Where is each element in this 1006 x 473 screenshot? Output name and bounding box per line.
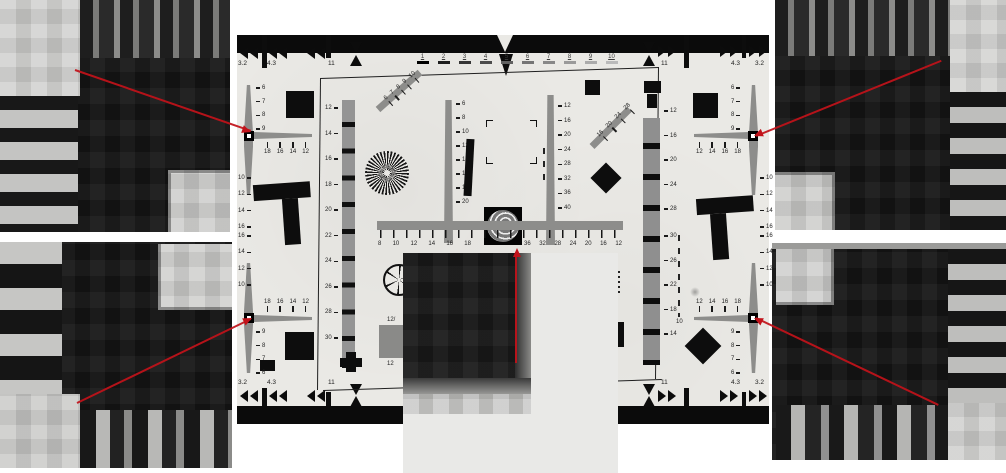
tick-label: 28 <box>664 206 677 212</box>
tick-icon <box>247 252 251 254</box>
grayscale-strip-right <box>643 118 660 365</box>
tick-label: 6 <box>731 85 740 91</box>
tick-label: 14 <box>238 249 251 255</box>
siemens-star <box>365 151 409 195</box>
tick-icon <box>247 177 251 179</box>
crop-light-square <box>158 244 232 310</box>
crop-bar-stripes <box>948 249 1006 403</box>
tick-icon <box>736 87 740 89</box>
crop-mark-icon <box>279 47 287 59</box>
tick-icon <box>334 261 338 263</box>
bl-horizontal-wedge <box>254 315 312 322</box>
black-bar <box>618 322 624 347</box>
tick-icon <box>724 306 726 312</box>
left-strip-labels: 12141618202224262830 <box>325 105 338 341</box>
br-horizontal-wedge <box>694 315 749 322</box>
tl-across-labels: 18161412 <box>264 142 309 155</box>
crop-bar <box>684 35 689 68</box>
tick-icon <box>760 235 764 237</box>
crop-mark-icon <box>307 390 315 402</box>
tick-icon <box>664 333 668 335</box>
aspect-label: 11 <box>661 380 668 387</box>
bowtie-icon <box>643 55 655 66</box>
tick-icon <box>711 306 713 312</box>
aspect-label: 11 <box>328 380 335 387</box>
tick-label: 10 <box>760 282 773 288</box>
crop-mark-icon <box>317 47 325 59</box>
tick-label: 8 <box>456 115 469 121</box>
crop-gray-band <box>403 394 531 414</box>
black-square <box>693 93 718 118</box>
tick-icon <box>664 309 668 311</box>
tick-label: 9 <box>731 329 740 335</box>
top-band-notch-icon <box>497 35 513 52</box>
bowtie-icon <box>643 396 655 407</box>
tick-icon <box>737 142 739 148</box>
tick-icon <box>334 312 338 314</box>
tick-label: 12 <box>664 108 677 114</box>
strip-top-block <box>644 81 661 93</box>
tick-icon <box>279 142 281 148</box>
tick-label: 14 <box>760 249 773 255</box>
tick-label: 16 <box>238 233 251 239</box>
crop-bar <box>326 392 331 406</box>
tick-label: 12 <box>411 241 418 247</box>
black-t-shape <box>253 181 317 249</box>
smudge-spot <box>690 287 700 297</box>
tick-label: 20 <box>605 120 619 134</box>
tick-label: 7 <box>731 99 740 105</box>
aspect-label: 3.2 <box>755 380 764 387</box>
crop-wedge-stripes <box>776 405 948 460</box>
center-right-sweep-labels: 1216202428323640 <box>558 103 571 211</box>
crop-wedge-stripes <box>775 0 953 56</box>
tick-icon <box>558 120 562 122</box>
bl-wedge-labels: 9876 <box>256 329 265 376</box>
tick-label: 14 <box>325 131 338 137</box>
tick-icon <box>279 306 281 312</box>
tick-label: 14 <box>290 142 297 155</box>
tick-label: 14 <box>428 241 435 247</box>
tick-label: 16 <box>446 241 453 247</box>
tick-label: 6 <box>256 85 265 91</box>
tick-icon <box>603 136 608 141</box>
crop-bar <box>742 392 746 406</box>
tick-label: 30 <box>664 233 677 239</box>
tick-label: 28 <box>558 161 571 167</box>
crop-mark-icon <box>240 390 248 402</box>
tick-icon <box>247 284 251 286</box>
aspect-label: 3.2 <box>238 380 247 387</box>
crop-light-region <box>0 394 80 468</box>
tick-icon <box>760 226 764 228</box>
br-ext-labels: 16141210 <box>760 233 773 288</box>
tr-horizontal-wedge <box>694 132 749 139</box>
tick-icon <box>305 142 307 148</box>
step-scale-item: 10 <box>604 54 619 64</box>
crop-mark-icon <box>658 45 666 57</box>
step-scale-item: 8 <box>562 54 577 64</box>
tick-label: 12 <box>696 142 703 155</box>
tick-icon <box>388 101 393 106</box>
tick-label: 12 <box>302 142 309 155</box>
tick-label: 14 <box>709 299 716 312</box>
crop-mark-icon <box>250 47 258 59</box>
tick-icon <box>711 142 713 148</box>
crop-mark-icon <box>307 47 315 59</box>
tick-label: 7 <box>389 89 400 101</box>
bowtie-icon <box>350 396 362 407</box>
crop-bar <box>684 388 689 406</box>
tick-label: 14 <box>290 299 297 312</box>
tick-label: 18 <box>734 299 741 312</box>
tick-label: 24 <box>664 182 677 188</box>
tick-label: 6 <box>456 101 469 107</box>
tick-icon <box>736 359 740 361</box>
tick-icon <box>456 103 460 105</box>
tick-label: 14 <box>709 142 716 155</box>
tick-icon <box>395 95 400 100</box>
step-bar <box>501 61 513 64</box>
gray-square <box>379 325 403 358</box>
gray-square-label-bottom: 12 <box>387 361 394 367</box>
tl-horizontal-wedge <box>254 132 312 139</box>
step-bar <box>543 61 555 64</box>
tl-wedge-labels: 6789 <box>256 85 265 132</box>
step-bar <box>480 61 492 64</box>
tick-icon <box>558 105 562 107</box>
tick-label: 14 <box>238 208 251 214</box>
tick-icon <box>736 101 740 103</box>
tick-label: 32 <box>558 176 571 182</box>
crop-mark-icon <box>240 47 248 59</box>
aspect-label: 4.3 <box>731 61 740 68</box>
step-bar <box>585 61 597 64</box>
crop-mark-icon <box>749 390 757 402</box>
aspect-label: 3.2 <box>238 61 247 68</box>
tick-icon <box>558 149 562 151</box>
tick-icon <box>407 84 412 89</box>
crop-mark-icon <box>269 390 277 402</box>
tick-label: 18 <box>264 142 271 155</box>
crop-wedge-stripes <box>80 0 230 58</box>
step-scale-item: 4 <box>478 54 493 64</box>
tick-icon <box>456 201 460 203</box>
tick-label: 9 <box>402 78 413 90</box>
crop-light-square <box>776 249 834 305</box>
tick-label: 12 <box>696 299 703 312</box>
tick-icon <box>334 209 338 211</box>
crop-mark-icon <box>759 45 767 57</box>
tick-icon <box>256 101 260 103</box>
tick-icon <box>630 109 635 114</box>
aspect-label: 4.3 <box>267 380 276 387</box>
step-scale-item: 6 <box>520 54 535 64</box>
tick-label: 22 <box>325 233 338 239</box>
tick-label: 14 <box>760 208 773 214</box>
tick-icon <box>256 359 260 361</box>
tick-label: 18 <box>734 142 741 155</box>
aspect-label: 11 <box>328 61 335 68</box>
tick-icon <box>664 184 668 186</box>
tick-label: 18 <box>464 241 471 247</box>
tick-label: 9 <box>256 329 265 335</box>
step-scale-item: 2 <box>436 54 451 64</box>
tick-icon <box>292 306 294 312</box>
tick-icon <box>256 345 260 347</box>
tick-icon <box>760 177 764 179</box>
dashed-line-lower <box>678 235 680 317</box>
crop-mark-icon <box>658 390 666 402</box>
crop-dark-edge <box>403 378 531 394</box>
crop-mark-icon <box>668 45 676 57</box>
tick-label: 28 <box>554 241 561 247</box>
bracket-icon <box>530 157 537 164</box>
aspect-label: 3.2 <box>755 61 764 68</box>
tick-icon <box>334 286 338 288</box>
tick-icon <box>736 345 740 347</box>
tick-icon <box>334 184 338 186</box>
crop-mark-icon <box>759 390 767 402</box>
tick-label: 6 <box>256 370 265 376</box>
tick-label: 16 <box>325 156 338 162</box>
step-scale-item: 9 <box>583 54 598 64</box>
pixel-crop-center <box>403 253 618 473</box>
tick-icon <box>737 306 739 312</box>
tick-icon <box>664 110 668 112</box>
crop-bar-stripes <box>950 92 1006 230</box>
tick-label: 16 <box>760 233 773 239</box>
tick-label: 8 <box>256 343 265 349</box>
right-strip-labels-upper: 1216202428 <box>664 108 677 212</box>
tick-icon <box>558 164 562 166</box>
step-scale-item: 7 <box>541 54 556 64</box>
tick-icon <box>334 107 338 109</box>
step-bar <box>522 61 534 64</box>
tick-label: 10 <box>760 175 773 181</box>
tick-label: 20 <box>585 241 592 247</box>
black-t-shape <box>696 193 760 263</box>
crop-mark-icon <box>269 47 277 59</box>
tick-icon <box>247 210 251 212</box>
tick-label: 28 <box>623 102 637 116</box>
grayscale-strip-left <box>342 100 355 368</box>
tick-icon <box>760 284 764 286</box>
bowtie-icon <box>350 55 362 66</box>
crop-wedge-stripes <box>80 410 232 468</box>
pixel-crop-bottom-right <box>772 243 1006 460</box>
tick-icon <box>736 372 740 374</box>
crop-mark-icon <box>720 45 728 57</box>
step-scale-item: 5 <box>499 54 514 64</box>
crop-mark-icon <box>749 45 757 57</box>
tick-label: 22 <box>664 282 677 288</box>
crop-mark-icon <box>279 390 287 402</box>
tick-icon <box>699 142 701 148</box>
strip-top-block <box>647 94 657 108</box>
tick-icon <box>401 90 406 95</box>
tick-label: 20 <box>325 207 338 213</box>
tick-label: 7 <box>731 356 740 362</box>
horizontal-ruler-bar <box>377 221 623 230</box>
tick-label: 24 <box>325 258 338 264</box>
tr-ext-labels: 10121416 <box>760 175 773 230</box>
tick-icon <box>334 158 338 160</box>
dotted-ticks <box>618 271 620 293</box>
crop-light-region <box>0 0 80 96</box>
tick-icon <box>247 235 251 237</box>
step-bar <box>606 61 618 64</box>
crop-dark-edge <box>515 253 531 378</box>
ruler-right-labels: 36322824201612 <box>524 241 622 247</box>
pixel-crop-top-left <box>0 0 230 232</box>
crop-bar-stripes <box>0 242 62 394</box>
tick-icon <box>256 115 260 117</box>
tick-label: 8 <box>256 112 265 118</box>
crop-light-region <box>950 0 1006 92</box>
arrowhead-icon <box>513 248 521 257</box>
crop-mark-icon <box>317 390 325 402</box>
tick-icon <box>292 142 294 148</box>
tick-label: 12 <box>615 241 622 247</box>
tick-icon <box>664 284 668 286</box>
tick-label: 16 <box>760 224 773 230</box>
scene: 3.2 4.3 11 11 4.3 3.2 3.2 4.3 11 <box>0 0 1006 473</box>
tick-label: 12 <box>760 191 773 197</box>
tick-label: 8 <box>395 84 406 96</box>
tick-icon <box>456 159 460 161</box>
step-bar <box>564 61 576 64</box>
tick-icon <box>305 306 307 312</box>
tick-icon <box>456 117 460 119</box>
tick-icon <box>256 128 260 130</box>
tick-icon <box>256 331 260 333</box>
tick-icon <box>247 194 251 196</box>
tick-label: 12 <box>325 105 338 111</box>
tick-label: 7 <box>256 99 265 105</box>
tick-label: 12 <box>238 266 251 272</box>
tick-icon <box>334 235 338 237</box>
tick-label: 18 <box>325 182 338 188</box>
tick-icon <box>664 235 668 237</box>
black-square <box>285 332 314 360</box>
crop-light-region <box>948 403 1006 460</box>
tick-label: 12 <box>760 266 773 272</box>
bracket-icon <box>486 120 493 127</box>
small-cross-shape <box>340 358 362 367</box>
black-diamond <box>685 328 722 365</box>
tick-label: 8 <box>378 241 381 247</box>
inner-frame-left <box>317 78 321 390</box>
aspect-label: 4.3 <box>731 380 740 387</box>
tick-label: 16 <box>277 142 284 155</box>
bowtie-icon <box>643 42 655 53</box>
br-wedge-labels: 9876 <box>731 329 740 376</box>
tick-icon <box>256 87 260 89</box>
tick-label: 28 <box>325 309 338 315</box>
crop-mark-icon <box>668 390 676 402</box>
tick-icon <box>247 268 251 270</box>
dashed-line-label: 10 <box>676 319 683 325</box>
tick-icon <box>415 77 420 82</box>
tick-icon <box>267 142 269 148</box>
crop-bar <box>326 35 331 58</box>
tick-label: 14 <box>664 331 677 337</box>
bowtie-icon <box>643 384 655 395</box>
pixel-crop-bottom-left <box>0 242 232 468</box>
tick-icon <box>664 159 668 161</box>
tick-icon <box>736 128 740 130</box>
crop-mark-icon <box>250 390 258 402</box>
tick-icon <box>558 178 562 180</box>
tick-icon <box>760 194 764 196</box>
ruler-left-labels: 81012141618 <box>378 241 471 247</box>
step-bar <box>438 61 450 64</box>
tick-label: 20 <box>456 199 469 205</box>
crop-dark-square <box>403 253 515 378</box>
tick-label: 16 <box>558 118 571 124</box>
tick-label: 16 <box>722 299 729 312</box>
tick-label: 9 <box>256 126 265 132</box>
tick-icon <box>736 331 740 333</box>
right-strip-labels-lower: 3026221814 <box>664 233 677 337</box>
tick-label: 20 <box>664 157 677 163</box>
tick-icon <box>699 306 701 312</box>
tick-icon <box>267 306 269 312</box>
tick-icon <box>760 268 764 270</box>
tick-label: 10 <box>238 175 251 181</box>
tick-label: 12 <box>238 191 251 197</box>
tick-icon <box>558 134 562 136</box>
crop-bar <box>262 388 267 406</box>
tick-label: 8 <box>731 343 740 349</box>
tick-label: 16 <box>277 299 284 312</box>
tick-label: 24 <box>570 241 577 247</box>
tick-label: 10 <box>238 282 251 288</box>
bl-across-labels: 18161412 <box>264 299 309 312</box>
step-scale-item: 3 <box>457 54 472 64</box>
tr-across-labels: 12141618 <box>696 142 741 155</box>
crop-mark-icon <box>730 390 738 402</box>
tick-label: 12 <box>302 299 309 312</box>
tick-label: 10 <box>393 241 400 247</box>
tick-label: 12 <box>558 103 571 109</box>
bl-ext-labels: 16141210 <box>238 233 251 288</box>
tr-wedge-labels: 6789 <box>731 85 740 132</box>
callout-line-center <box>515 252 517 363</box>
tick-icon <box>247 226 251 228</box>
tick-icon <box>334 337 338 339</box>
crop-bar <box>742 35 746 58</box>
tick-icon <box>612 127 617 132</box>
bracket-icon <box>530 120 537 127</box>
tick-label: 40 <box>558 205 571 211</box>
crop-light-square <box>775 172 835 230</box>
tick-icon <box>558 207 562 209</box>
diagonal-right-labels: 16202428 <box>596 102 637 143</box>
step-bar <box>417 61 429 64</box>
center-black-bar <box>464 139 475 196</box>
step-scale-item: 1 <box>415 54 430 64</box>
tick-icon <box>736 115 740 117</box>
inner-frame-top <box>320 67 659 79</box>
tick-icon <box>664 208 668 210</box>
tick-label: 16 <box>238 224 251 230</box>
crop-bar-stripes <box>0 96 78 232</box>
tick-icon <box>621 118 626 123</box>
br-across-labels: 12141618 <box>696 299 741 312</box>
tick-icon <box>664 135 668 137</box>
